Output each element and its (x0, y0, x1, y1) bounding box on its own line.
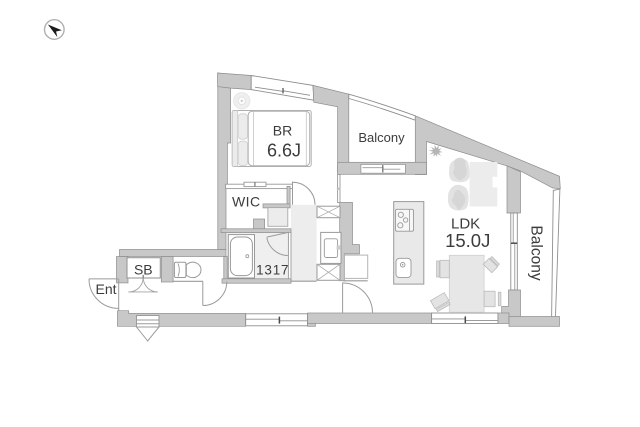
svg-text:6.6J: 6.6J (267, 140, 301, 160)
svg-text:Balcony: Balcony (528, 225, 545, 280)
svg-text:Balcony: Balcony (358, 130, 405, 145)
svg-text:WIC: WIC (232, 194, 261, 210)
svg-text:Ent: Ent (95, 281, 116, 297)
svg-text:BR: BR (273, 122, 292, 138)
svg-text:1317: 1317 (256, 262, 289, 277)
svg-text:15.0J: 15.0J (445, 230, 490, 251)
svg-text:SB: SB (134, 262, 153, 278)
